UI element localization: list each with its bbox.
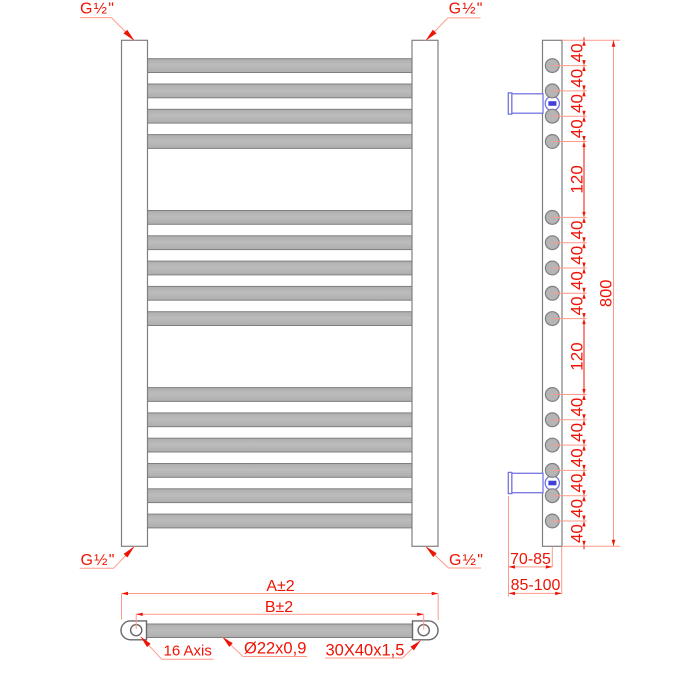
svg-text:40: 40 [568, 246, 587, 265]
svg-text:800: 800 [597, 280, 615, 308]
svg-text:40: 40 [568, 296, 587, 315]
svg-text:40: 40 [568, 221, 587, 240]
svg-text:A±2: A±2 [266, 578, 294, 595]
svg-text:120: 120 [568, 165, 587, 193]
svg-text:40: 40 [568, 94, 587, 113]
svg-text:40: 40 [568, 398, 587, 417]
svg-text:40: 40 [568, 119, 587, 138]
svg-text:40: 40 [568, 69, 587, 88]
svg-text:40: 40 [568, 271, 587, 290]
svg-text:40: 40 [568, 448, 587, 467]
svg-text:G½": G½" [80, 0, 115, 17]
svg-text:85-100: 85-100 [511, 577, 561, 594]
svg-text:70-85: 70-85 [510, 551, 551, 568]
svg-text:G½": G½" [81, 552, 116, 569]
svg-text:30X40x1,5: 30X40x1,5 [326, 642, 405, 660]
svg-text:B±2: B±2 [265, 599, 293, 616]
svg-text:G½": G½" [449, 0, 484, 17]
svg-text:40: 40 [568, 524, 587, 543]
svg-text:G½": G½" [449, 552, 484, 569]
svg-text:40: 40 [568, 43, 587, 62]
svg-text:120: 120 [568, 342, 587, 370]
svg-text:16 Axis: 16 Axis [164, 643, 212, 660]
svg-text:Ø22x0,9: Ø22x0,9 [244, 640, 306, 658]
svg-text:40: 40 [568, 474, 587, 493]
svg-text:40: 40 [568, 423, 587, 442]
svg-text:40: 40 [568, 499, 587, 518]
